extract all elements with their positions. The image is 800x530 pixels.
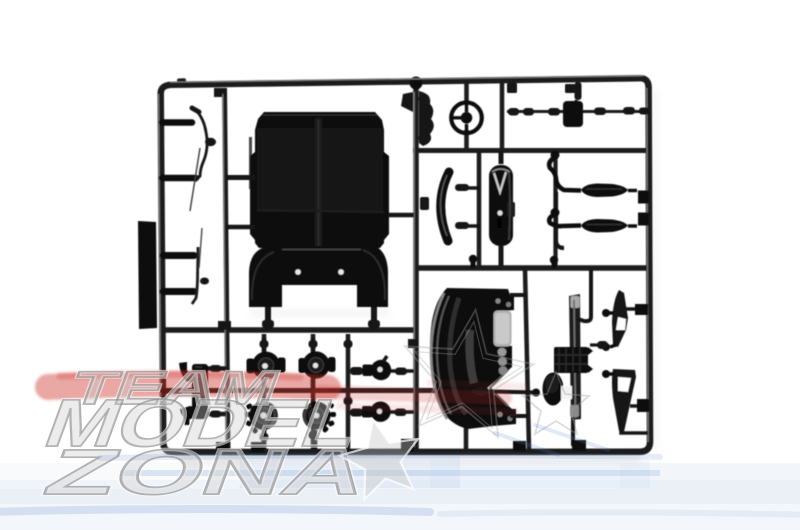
svg-text:ZONA: ZONA: [36, 437, 379, 509]
